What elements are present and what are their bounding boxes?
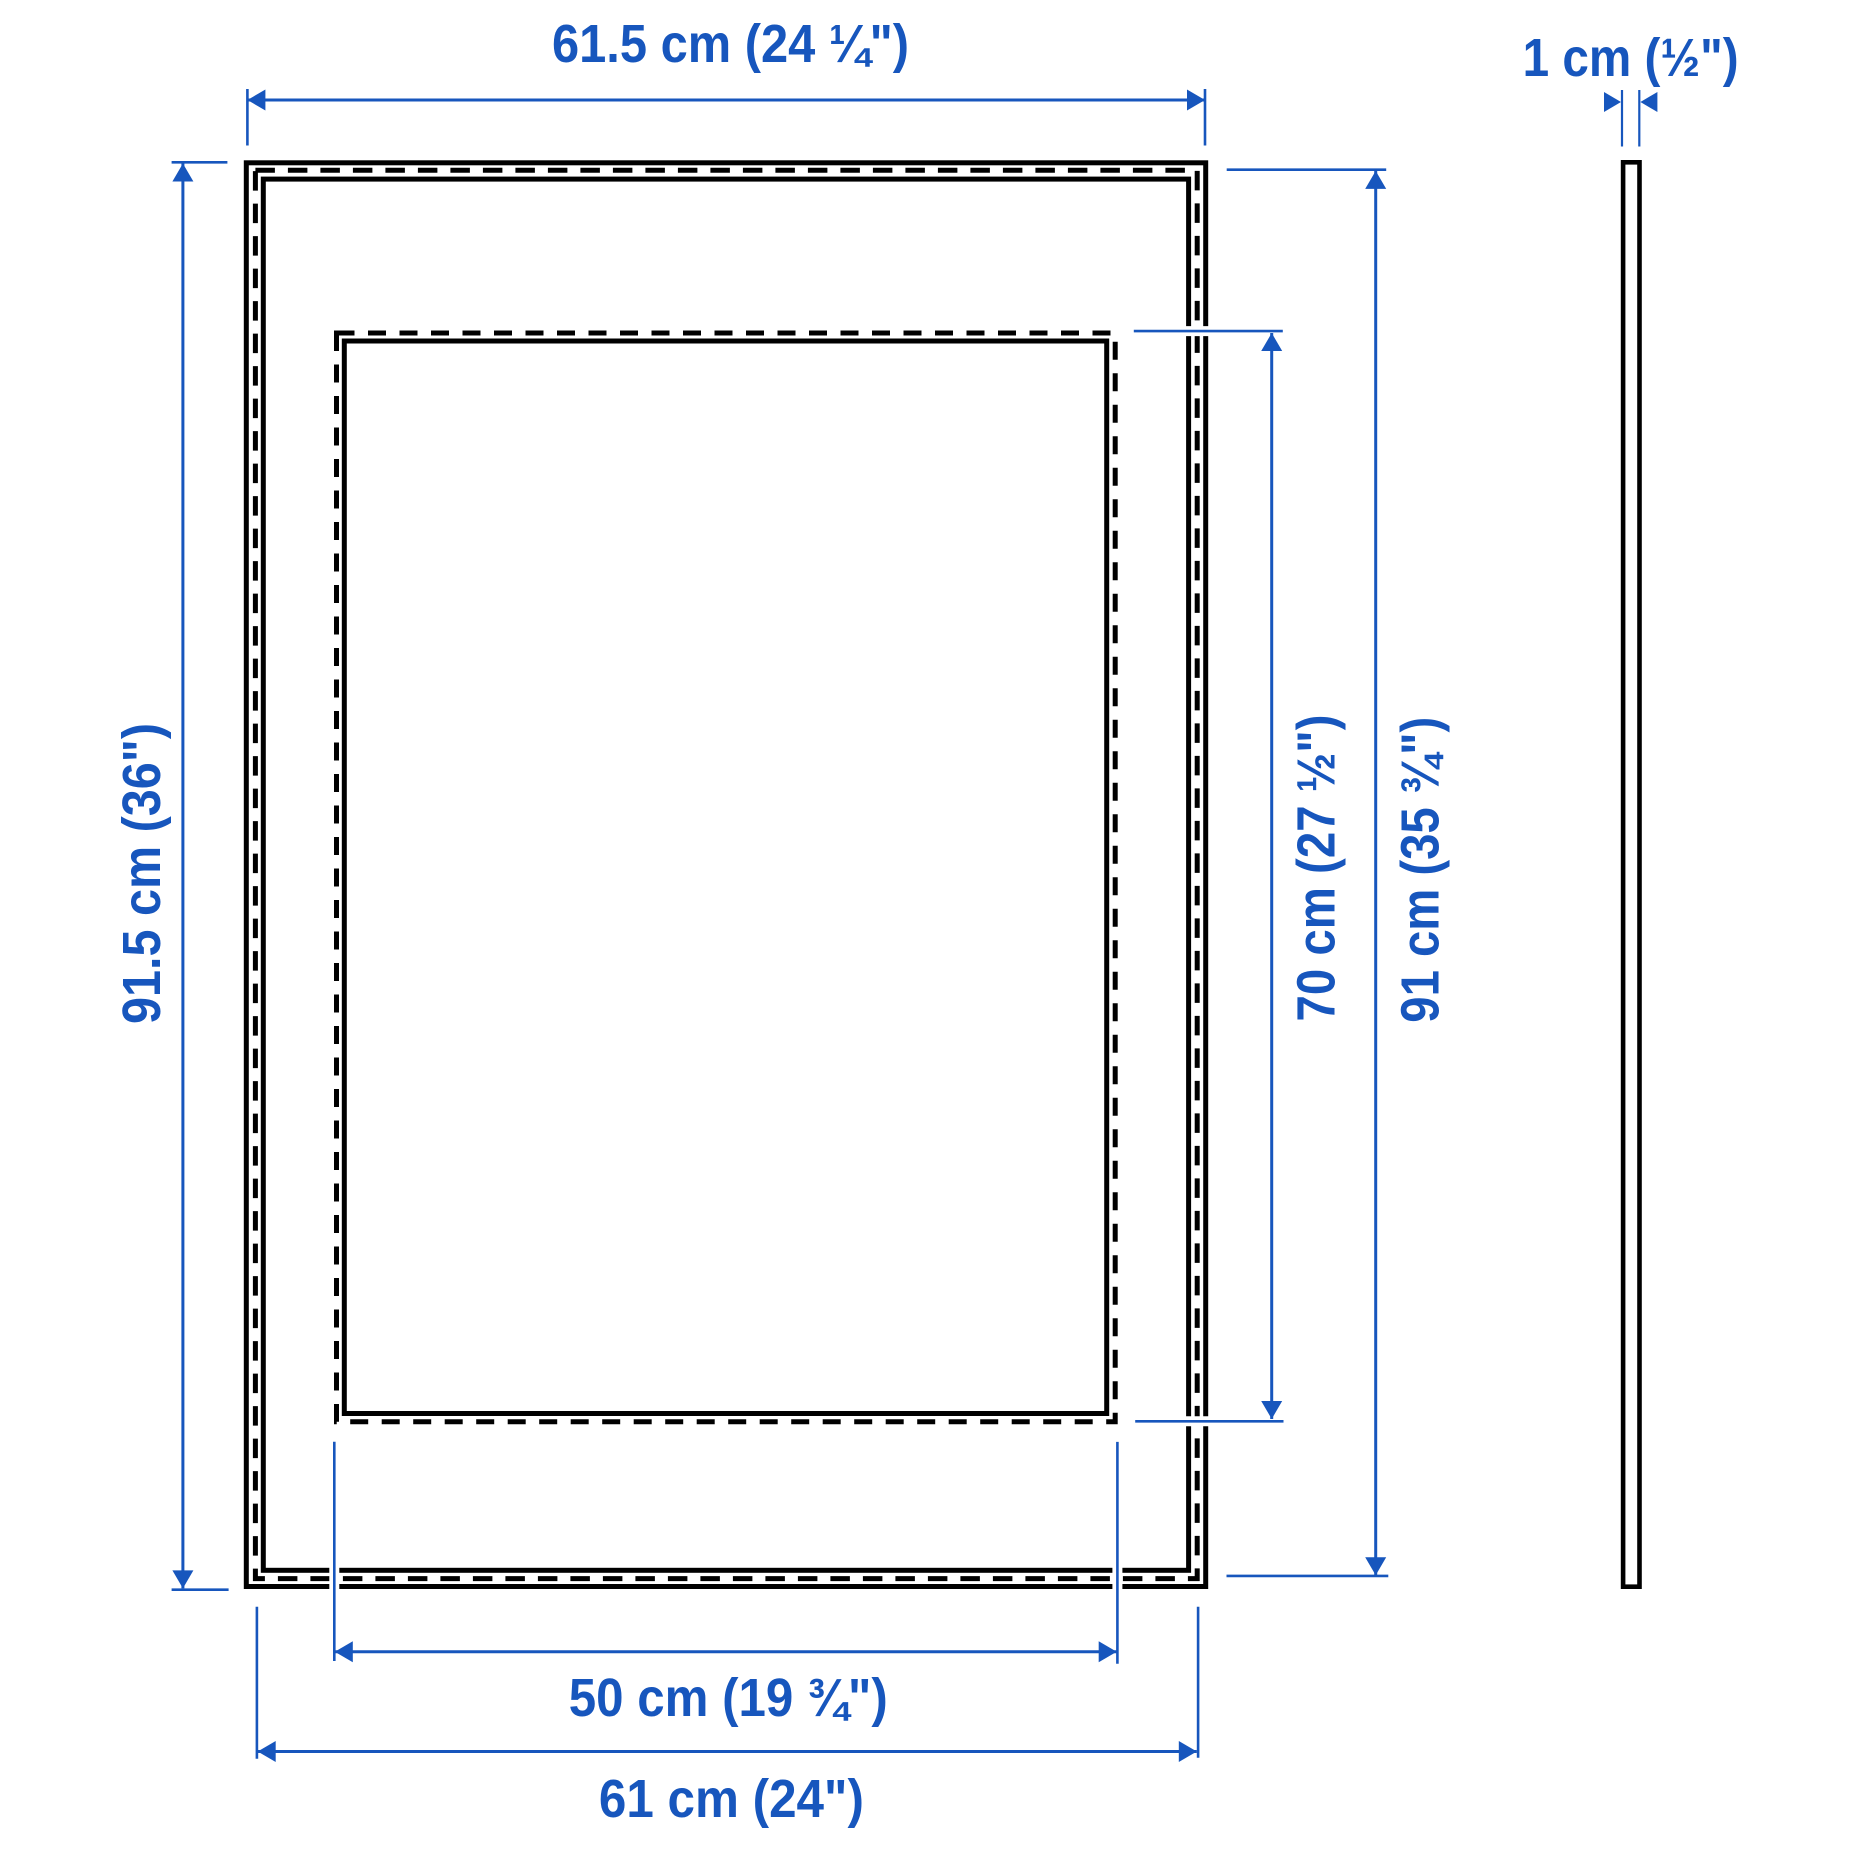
svg-text:61 cm (24"): 61 cm (24") (599, 1769, 864, 1829)
svg-text:91 cm (35 ¾"): 91 cm (35 ¾") (1391, 717, 1451, 1023)
svg-text:61.5 cm (24 ¼"): 61.5 cm (24 ¼") (552, 14, 909, 74)
svg-text:1 cm (½"): 1 cm (½") (1523, 28, 1739, 88)
svg-text:91.5 cm (36"): 91.5 cm (36") (112, 723, 172, 1024)
svg-text:70 cm (27 ½"): 70 cm (27 ½") (1287, 715, 1347, 1022)
svg-text:50 cm (19 ¾"): 50 cm (19 ¾") (569, 1668, 888, 1728)
